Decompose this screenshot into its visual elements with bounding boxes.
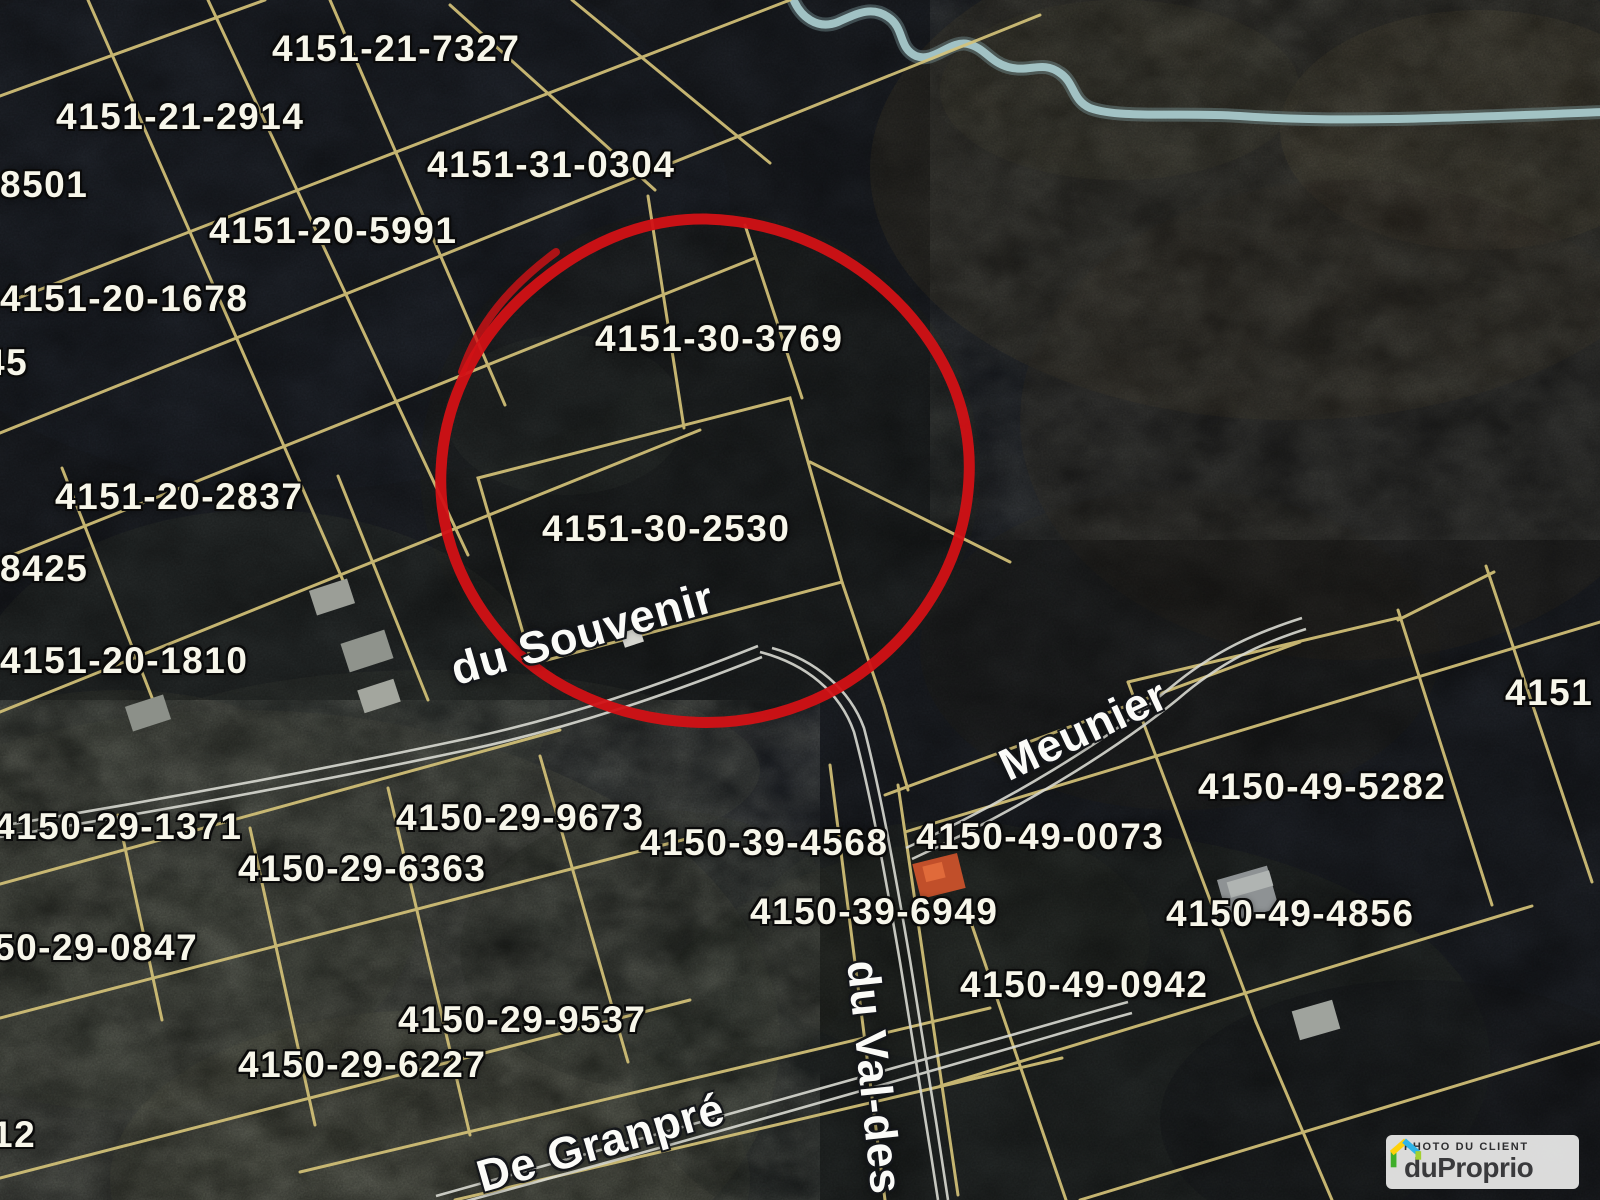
parcel-label: 4150-29-6227 (238, 1046, 486, 1083)
parcel-label: 50-29-0847 (0, 929, 198, 966)
parcel-label: 8425 (0, 550, 88, 587)
parcel-label-highlighted: 4151-30-3769 (595, 320, 843, 357)
parcel-label: 4150-49-4856 (1166, 895, 1414, 932)
terrain (0, 0, 1600, 1200)
parcel-label: 8501 (0, 166, 88, 203)
parcel-label: 4150-49-0073 (916, 818, 1164, 855)
parcel-label: 4150-49-5282 (1198, 768, 1446, 805)
parcel-label: 4151 (1505, 674, 1593, 711)
parcel-label: 4150-29-9537 (398, 1001, 646, 1038)
parcel-label: 4150-29-6363 (238, 850, 486, 887)
parcel-label: 4151-20-1810 (0, 642, 248, 679)
parcel-label: 4151-21-2914 (56, 98, 304, 135)
parcel-label: 4151-20-1678 (0, 280, 248, 317)
duproprio-house-icon (1386, 1135, 1424, 1173)
parcel-label: 4150-39-6949 (750, 893, 998, 930)
parcel-label: 12 (0, 1116, 36, 1153)
parcel-label: 4151-31-0304 (427, 146, 675, 183)
duproprio-watermark: PHOTO DU CLIENT duProprio (1386, 1135, 1579, 1189)
cadastral-map: 4151-21-7327 4151-21-2914 8501 4151-31-0… (0, 0, 1600, 1200)
parcel-label: 45 (0, 344, 28, 381)
parcel-label: 4151-20-2837 (55, 478, 303, 515)
parcel-label: 4150-29-9673 (396, 799, 644, 836)
parcel-label: 4151-21-7327 (272, 30, 520, 67)
parcel-label: 4150-49-0942 (960, 966, 1208, 1003)
map-graphics (0, 0, 1600, 1200)
parcel-label: 4150-39-4568 (640, 824, 888, 861)
parcel-label-highlighted: 4151-30-2530 (542, 510, 790, 547)
parcel-label: 4150-29-1371 (0, 808, 242, 845)
parcel-label: 4151-20-5991 (209, 212, 457, 249)
